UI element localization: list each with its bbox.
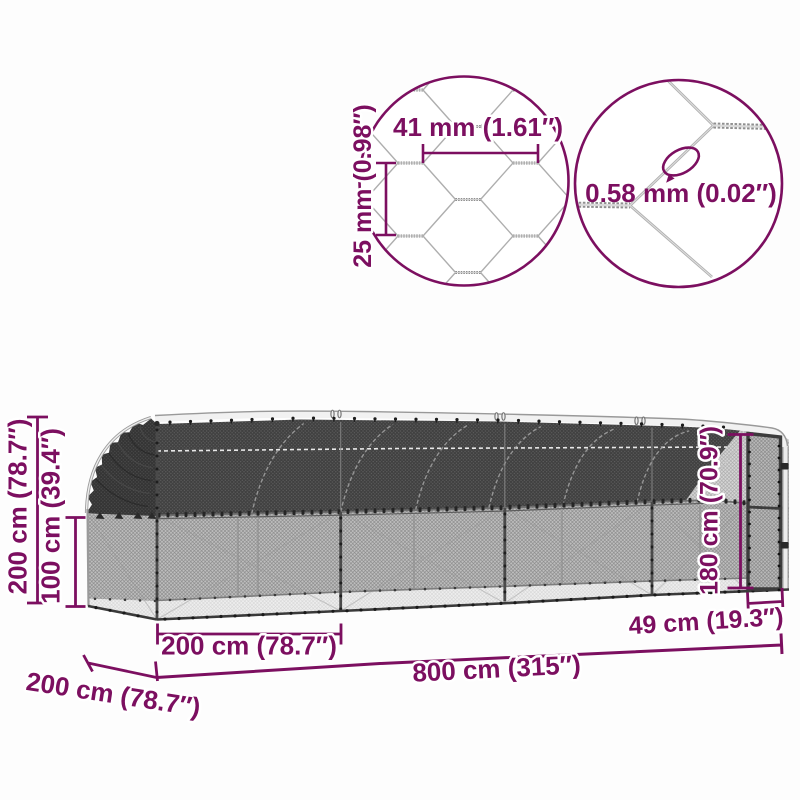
svg-text:800 cm (315″): 800 cm (315″) <box>412 649 582 687</box>
svg-text:25 mm (0.98″): 25 mm (0.98″) <box>349 104 377 267</box>
svg-text:200 cm (78.7″): 200 cm (78.7″) <box>3 419 33 595</box>
svg-text:200 cm (78.7″): 200 cm (78.7″) <box>161 631 337 661</box>
svg-text:49 cm (19.3″): 49 cm (19.3″) <box>628 603 785 640</box>
svg-text:41 mm (1.61″): 41 mm (1.61″) <box>393 112 563 142</box>
svg-text:0.58 mm (0.02″): 0.58 mm (0.02″) <box>585 178 777 208</box>
svg-text:180 cm (70.9″): 180 cm (70.9″) <box>696 426 724 595</box>
svg-text:100 cm (39.4″): 100 cm (39.4″) <box>36 428 66 604</box>
svg-text:200 cm (78.7″): 200 cm (78.7″) <box>24 666 202 722</box>
